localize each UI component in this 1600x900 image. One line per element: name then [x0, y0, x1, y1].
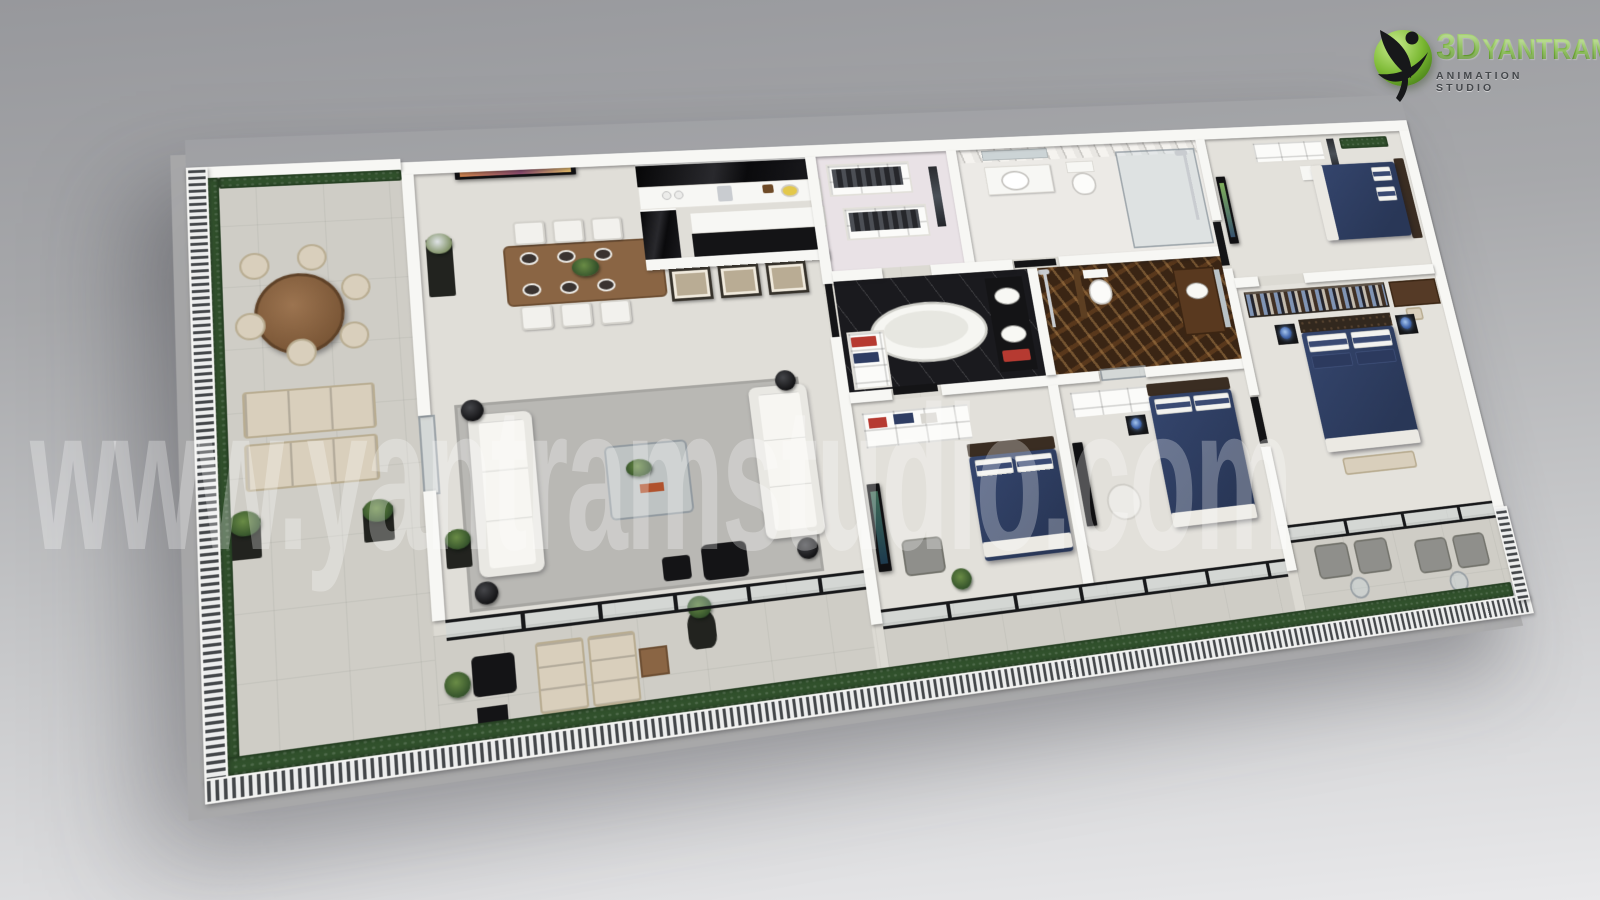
- red-towel: [851, 336, 878, 348]
- dining-chair: [552, 218, 585, 243]
- dining-chair: [560, 302, 594, 328]
- floor-plan: [185, 95, 1530, 800]
- dresser-wood: [1388, 278, 1441, 307]
- pillow: [1306, 333, 1349, 353]
- shoe-rack-shoes: [831, 166, 903, 188]
- sun-lounger: [587, 630, 642, 707]
- framed-picture: [717, 264, 762, 299]
- sun-lounger: [535, 637, 590, 715]
- framed-picture: [669, 267, 714, 302]
- logo-brand-row: 3D YANTRAM: [1436, 26, 1586, 68]
- logo-text-block: 3D YANTRAM ANIMATION STUDIO: [1436, 26, 1586, 94]
- toilet-tank: [1065, 161, 1094, 174]
- toilet-tank: [1082, 269, 1108, 279]
- balcony-armchair: [1313, 542, 1354, 580]
- pillow: [1371, 166, 1393, 181]
- terrace-armchair-black: [471, 652, 517, 698]
- folded-linen: [920, 412, 938, 423]
- wardrobe-white: [1251, 139, 1327, 164]
- red-towel: [1002, 348, 1031, 362]
- dining-chair: [512, 221, 546, 246]
- navy-towel: [853, 352, 880, 364]
- red-towel: [868, 417, 888, 429]
- render-stage: www.yantramstudio.com 3D YANTRAM ANIMATI…: [0, 0, 1600, 900]
- navy-towel: [893, 413, 914, 425]
- yantram-logo: 3D YANTRAM ANIMATION STUDIO: [1374, 12, 1580, 108]
- coffee-machine: [717, 185, 734, 201]
- planter-hedge: [1339, 136, 1389, 149]
- terrace-side-table: [638, 645, 670, 678]
- dining-chair: [520, 304, 554, 330]
- bread-board: [762, 184, 774, 193]
- ottoman-black: [662, 555, 693, 582]
- framed-picture: [765, 261, 809, 295]
- kitchen-tall-unit: [640, 208, 682, 263]
- coffee-table: [604, 439, 695, 521]
- logo-tagline: ANIMATION STUDIO: [1436, 70, 1586, 94]
- bedroom3-master-wall: [1234, 276, 1259, 287]
- dining-chair: [590, 216, 623, 241]
- shower-head: [1174, 150, 1187, 156]
- lounge-chair-black: [700, 540, 749, 581]
- logo-3d-text: 3D: [1436, 26, 1480, 68]
- pillow: [1376, 186, 1398, 201]
- armchair: [901, 536, 947, 577]
- dining-chair: [599, 299, 633, 325]
- logo-brand-text: YANTRAM: [1482, 34, 1600, 67]
- pillow: [1350, 329, 1393, 349]
- shower-head: [1037, 269, 1050, 275]
